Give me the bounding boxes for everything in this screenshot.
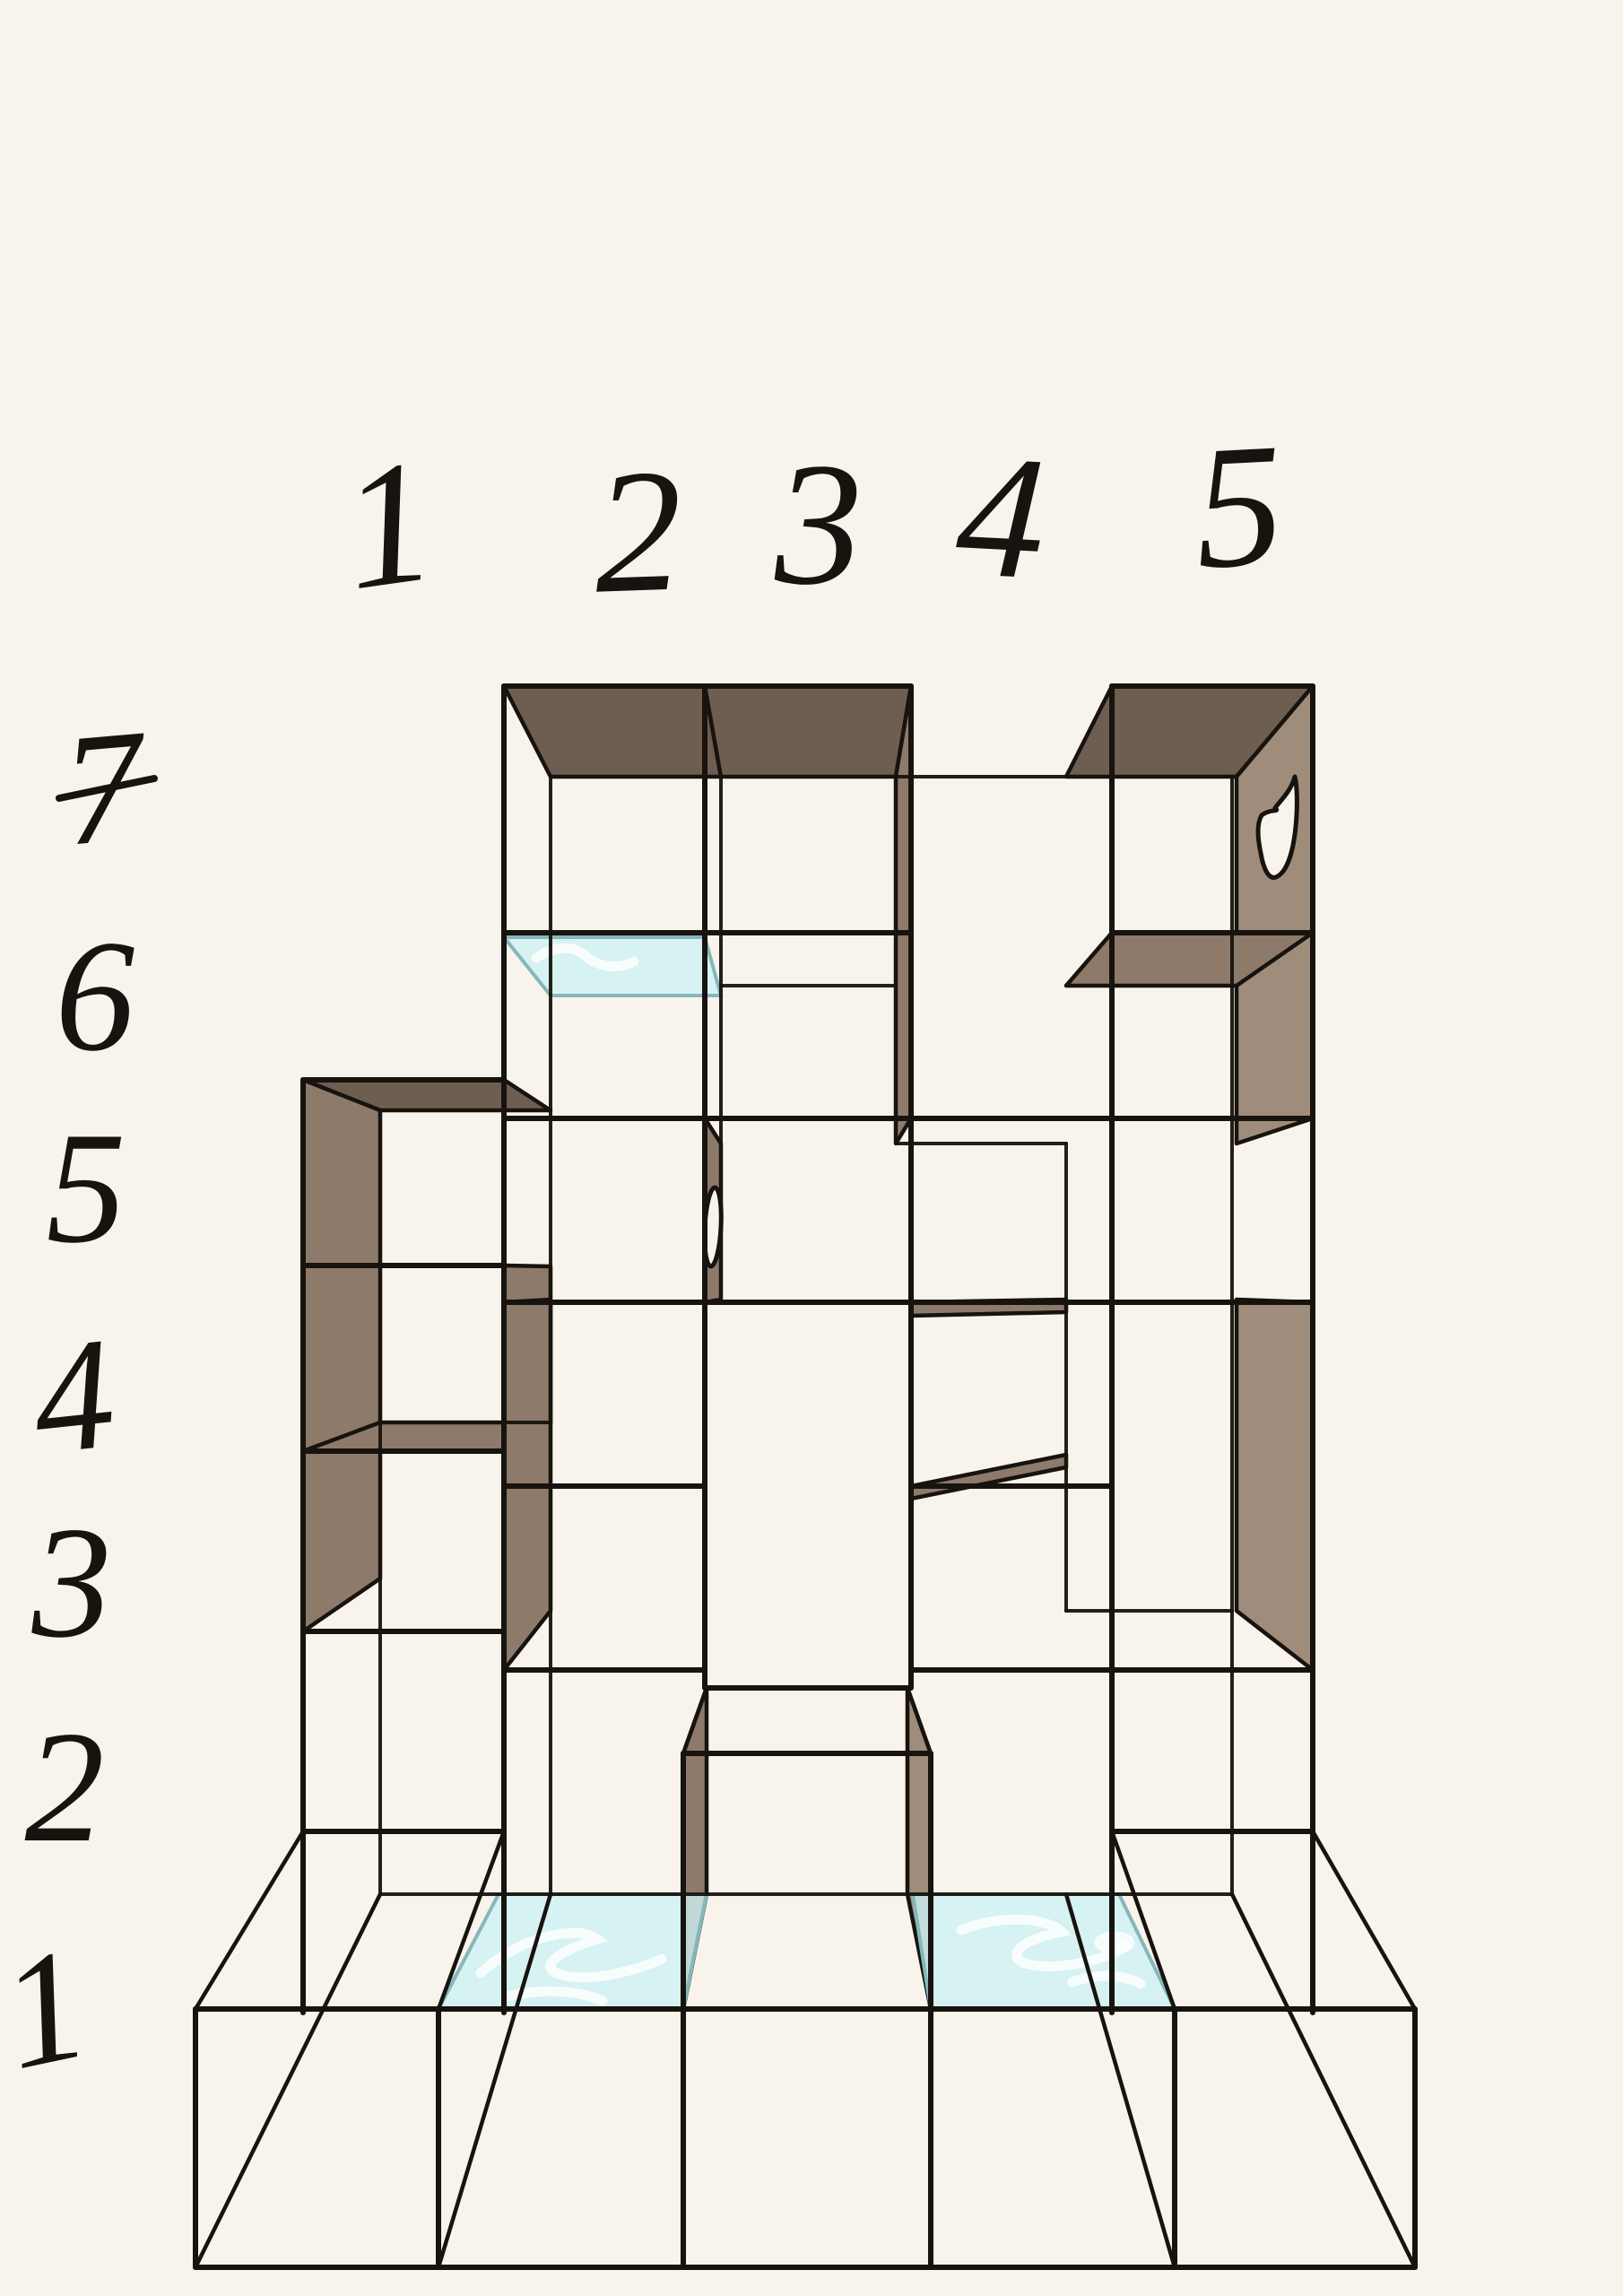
column-label-2: 2: [591, 432, 686, 630]
wall-col1-left: [303, 1080, 380, 1631]
column-label-5: 5: [1190, 407, 1288, 606]
sketch-page: 1 2 3 4 5 7 6 5 4 3 2 1: [0, 0, 1623, 2296]
voxel-structure-drawing: 1 2 3 4 5 7 6 5 4 3 2 1: [0, 0, 1623, 2296]
wall-col5-lower: [1237, 1300, 1313, 1670]
row-label-3: 3: [31, 1493, 112, 1671]
column-label-4: 4: [952, 418, 1050, 617]
ceiling-col3-row7: [705, 686, 911, 777]
row-label-2: 2: [25, 1698, 105, 1875]
column-label-3: 3: [774, 427, 863, 622]
row-label-6: 6: [56, 907, 135, 1084]
row-label-5: 5: [47, 1099, 126, 1276]
paper-background: [0, 0, 1623, 2296]
